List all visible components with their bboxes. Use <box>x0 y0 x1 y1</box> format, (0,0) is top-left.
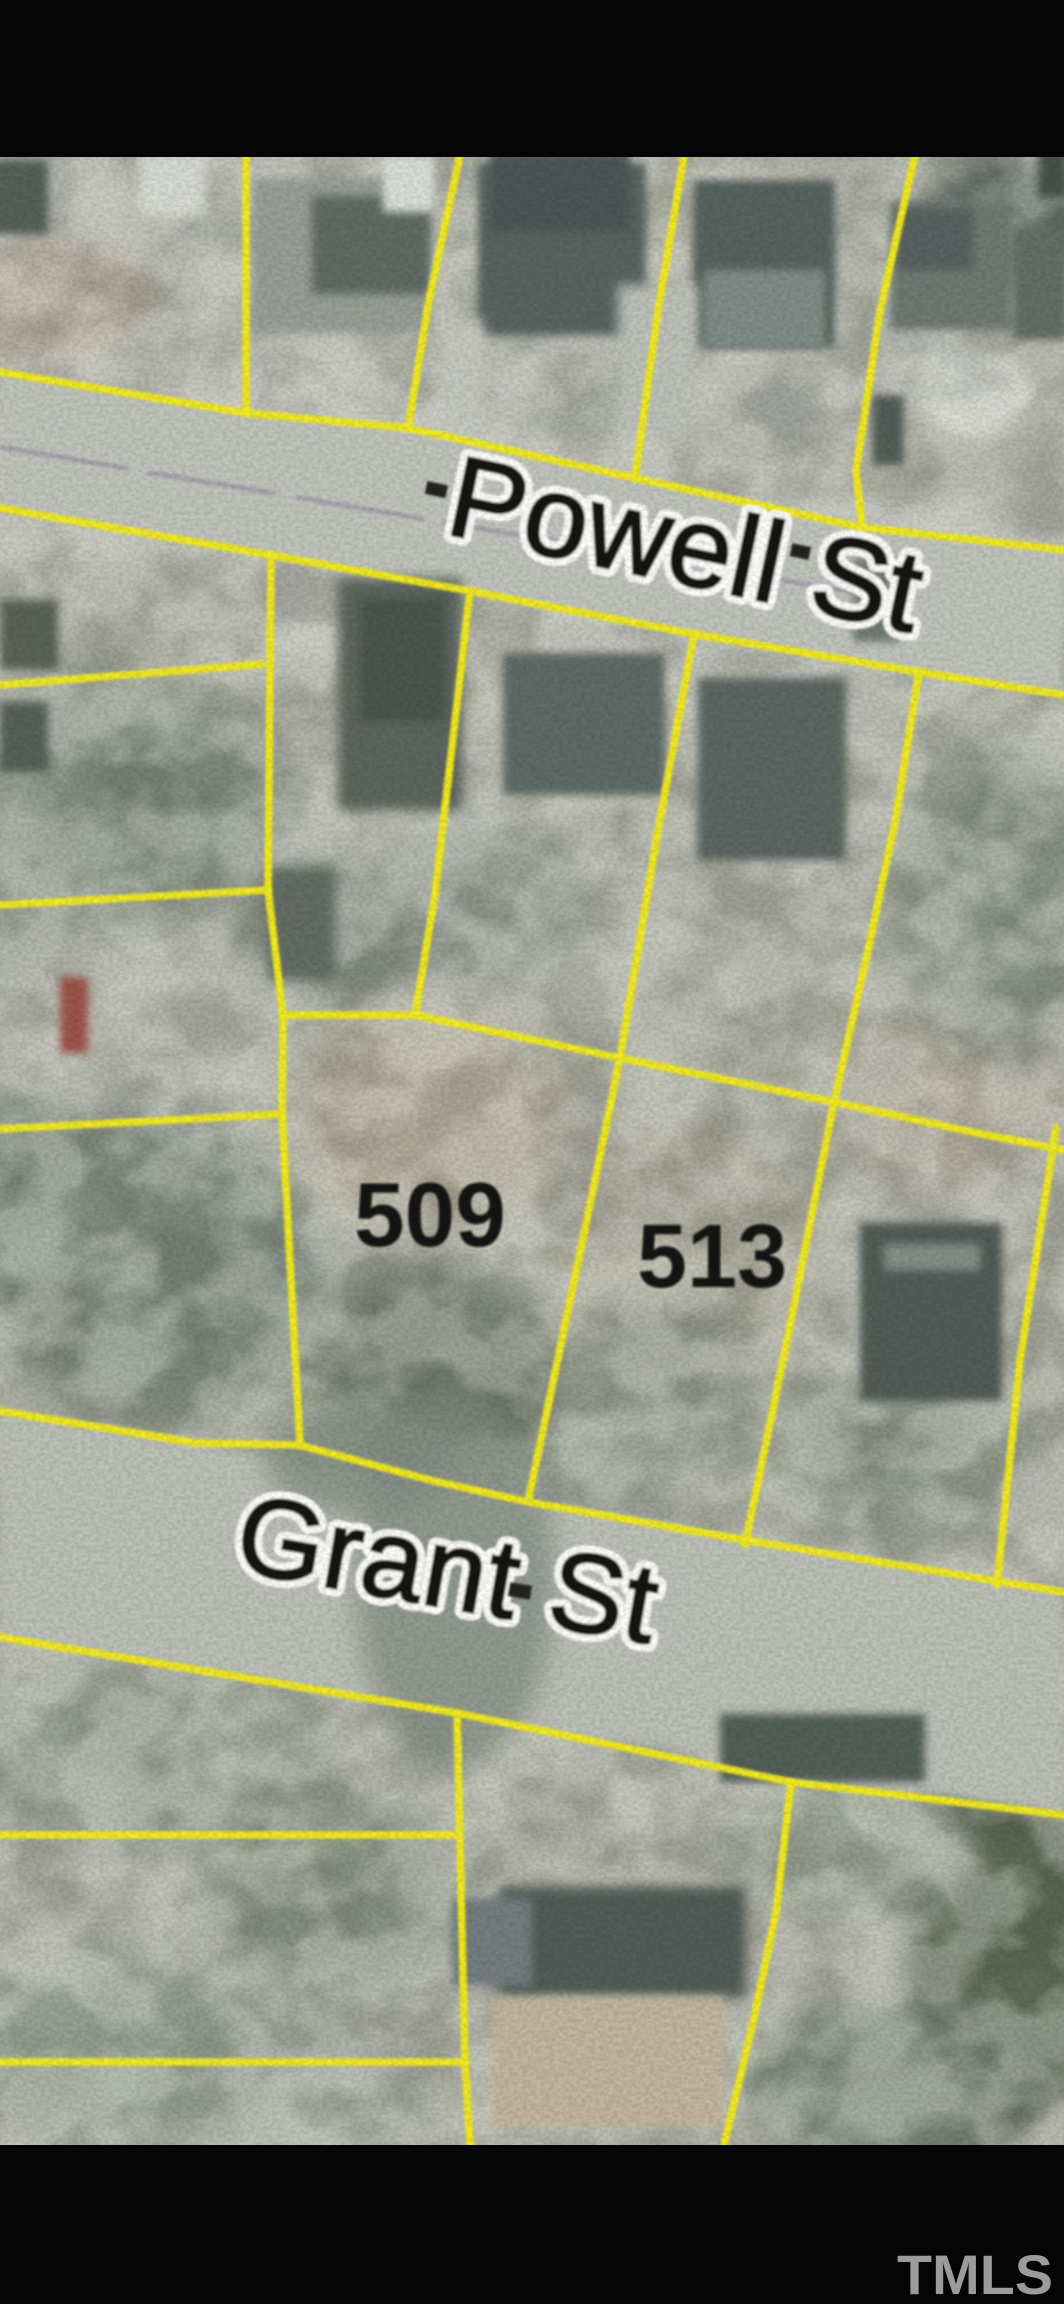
svg-text:TMLS: TMLS <box>897 2243 1053 2304</box>
